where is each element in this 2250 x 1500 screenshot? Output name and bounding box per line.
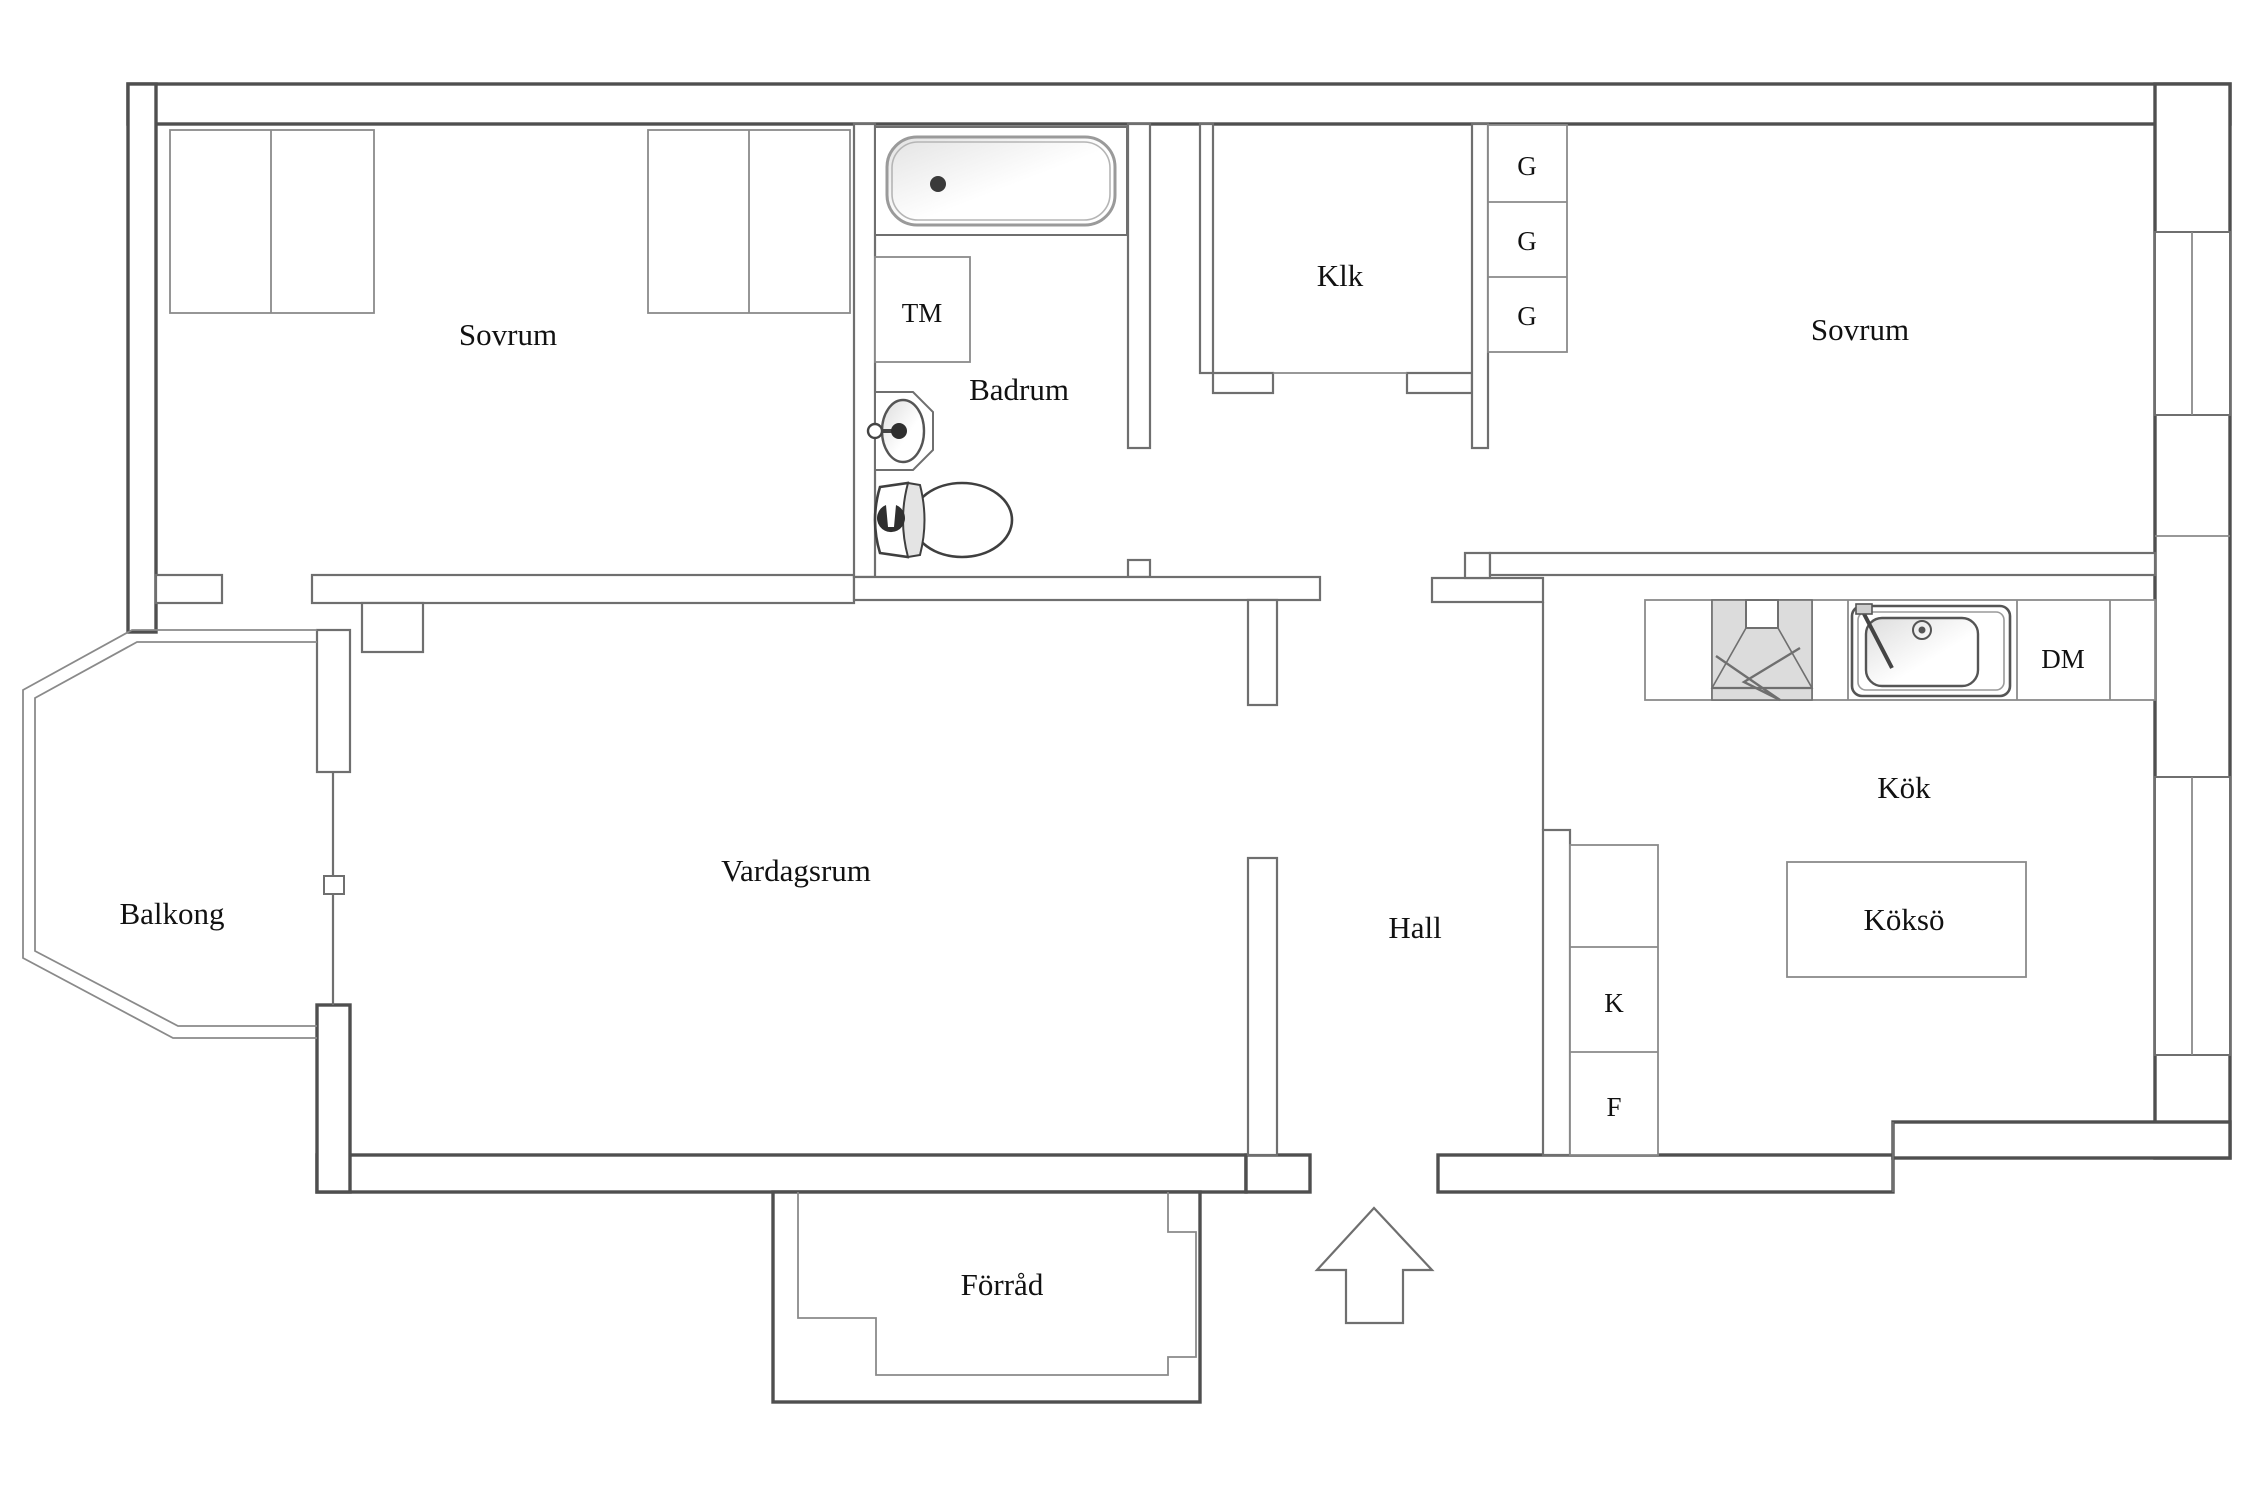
window-bedroom-2	[2155, 232, 2230, 415]
stove-hood-icon	[1712, 600, 1812, 700]
balcony	[23, 630, 344, 1038]
room-label-forrad: Förråd	[961, 1267, 1044, 1302]
fixture-label-g1: G	[1517, 151, 1537, 181]
room-label-klk: Klk	[1317, 258, 1364, 293]
fixture-label-f: F	[1606, 1092, 1621, 1122]
room-label-vardagsrum: Vardagsrum	[721, 853, 871, 888]
wall-badrum-east-stub	[1128, 560, 1150, 577]
room-label-kokso: Köksö	[1864, 902, 1945, 937]
wall-badrum-west	[854, 124, 875, 577]
wall-klk-south-pier-left	[1213, 373, 1273, 393]
wardrobes-sovrum-1	[170, 130, 850, 313]
wall-corridor-south	[854, 577, 1320, 600]
fixture-label-k: K	[1604, 988, 1624, 1018]
room-label-balkong: Balkong	[119, 896, 224, 931]
wall-south-entry-left	[1246, 1155, 1310, 1192]
wall-badrum-east	[1128, 124, 1150, 448]
wall-sovrum1-south-pier	[156, 575, 222, 603]
wall-sovrum2-south	[1490, 553, 2155, 575]
wall-hall-west-upper	[1248, 600, 1277, 705]
wall-south-east	[1893, 1122, 2230, 1158]
bathtub-icon	[875, 127, 1127, 235]
fixture-label-dm: DM	[2041, 644, 2085, 674]
room-label-sovrum-2: Sovrum	[1811, 312, 1909, 347]
room-label-hall: Hall	[1388, 910, 1441, 945]
wall-vardagsrum-west-upper	[317, 630, 350, 772]
floor-plan: Sovrum Sovrum Badrum Klk Kök Köksö Hall …	[0, 0, 2250, 1500]
wall-hall-north	[1432, 578, 1543, 602]
fixture-label-tm: TM	[902, 298, 943, 328]
balcony-inner-rail	[35, 642, 317, 1026]
entrance-arrow-icon	[1317, 1208, 1432, 1323]
wall-south-mid	[1438, 1155, 1893, 1192]
wall-hall-west-lower	[1248, 858, 1277, 1155]
pier-vardagsrum-nw	[362, 603, 423, 652]
wall-klk-south-pier-right	[1407, 373, 1472, 393]
wall-north	[128, 84, 2230, 124]
wall-hall-east	[1543, 830, 1570, 1155]
labels: Sovrum Sovrum Badrum Klk Kök Köksö Hall …	[119, 151, 2084, 1302]
room-label-badrum: Badrum	[969, 372, 1069, 407]
room-label-kok: Kök	[1877, 770, 1931, 805]
wall-sovrum1-south	[312, 575, 854, 603]
balcony-door-handle	[324, 876, 344, 894]
toilet-icon	[875, 483, 1012, 557]
wall-klk-west	[1200, 124, 1213, 373]
wall-klk-east	[1472, 124, 1488, 448]
wall-west-below-balcony	[317, 1005, 350, 1192]
wall-hall-north-stub	[1465, 553, 1490, 578]
window-kitchen	[2155, 777, 2230, 1055]
room-label-sovrum-1: Sovrum	[459, 317, 557, 352]
fixture-label-g3: G	[1517, 301, 1537, 331]
wall-south-west	[317, 1155, 1246, 1192]
washbasin-icon	[868, 392, 933, 470]
fixture-label-g2: G	[1517, 226, 1537, 256]
balcony-outer-rail	[23, 630, 317, 1038]
kitchen-sink-icon	[1852, 604, 2010, 696]
wall-west-upper	[128, 84, 156, 632]
